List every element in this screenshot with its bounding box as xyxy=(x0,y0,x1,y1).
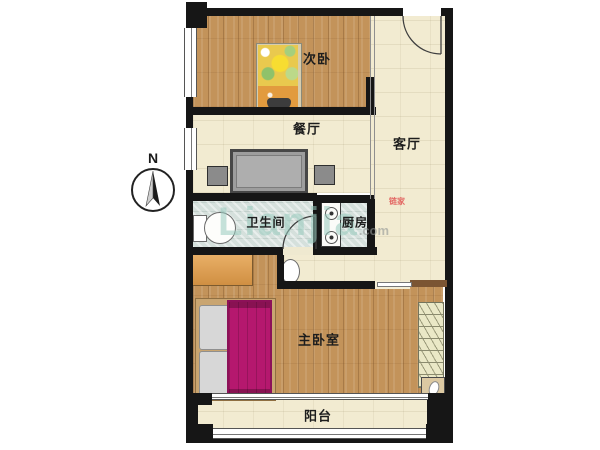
bed-master-pillow-top xyxy=(199,305,230,350)
wardrobe xyxy=(418,302,444,388)
bed-secondary-floral-blanket xyxy=(258,45,298,86)
bed-secondary xyxy=(256,43,302,115)
bed-master-pillow-bottom xyxy=(199,351,230,397)
room-label-bathroom: 卫生间 xyxy=(246,214,285,231)
stove-burner-bottom xyxy=(325,231,338,244)
dining-table-top xyxy=(236,155,302,188)
stove-burner-top xyxy=(325,207,338,220)
wall-balcony-right xyxy=(427,393,453,425)
room-label-kitchen: 厨房 xyxy=(342,214,368,231)
dining-table xyxy=(230,149,308,194)
room-label-living: 客厅 xyxy=(393,134,421,153)
wall-stub-balcony-left xyxy=(186,393,212,405)
wall-master-top xyxy=(277,281,377,289)
compass-north-letter: N xyxy=(148,150,158,166)
room-label-master: 主卧室 xyxy=(298,330,340,349)
wall-right xyxy=(445,8,453,443)
wall-kitchen-top xyxy=(313,195,375,203)
floor-plan-canvas: N Lianjia.com 链家 次卧 餐厅 客厅 卫生间 厨房 主卧室 阳台 xyxy=(0,0,600,450)
slider-master-balcony xyxy=(212,393,428,400)
window-bedroom2-left xyxy=(184,28,197,97)
room-label-dining: 餐厅 xyxy=(293,119,321,138)
wall-corner-bottom-left xyxy=(186,424,213,437)
partition-line-left xyxy=(370,16,371,199)
wall-bathroom-bottom xyxy=(186,247,283,255)
window-balcony-bottom xyxy=(213,428,426,439)
wall-kitchen-bottom xyxy=(313,247,377,255)
bed-master-blanket xyxy=(227,300,272,397)
wall-left-a xyxy=(186,8,193,28)
cabinet xyxy=(189,252,253,286)
wall-left-c xyxy=(186,170,193,393)
partition-line-right xyxy=(374,16,375,199)
wall-bath-kitchen-divider xyxy=(313,195,321,249)
master-door-leaf xyxy=(377,282,412,287)
window-dining-left xyxy=(184,128,197,170)
bathroom-door-opening xyxy=(283,247,313,255)
compass-icon: N xyxy=(126,150,180,216)
toilet-bowl xyxy=(204,212,236,244)
room-label-bedroom2: 次卧 xyxy=(303,49,331,68)
wall-corner-bottom-right xyxy=(426,424,453,437)
dining-chair-left xyxy=(207,166,228,186)
wall-master-top-right xyxy=(410,280,447,287)
bed-master xyxy=(195,298,276,401)
wall-bathroom-top xyxy=(186,193,317,201)
wall-top-left-segment xyxy=(186,8,403,16)
entrance-opening xyxy=(403,8,441,16)
dining-chair-right xyxy=(314,165,335,185)
room-label-balcony: 阳台 xyxy=(304,406,332,425)
wall-bedroom2-bottom xyxy=(189,107,376,115)
stove xyxy=(321,202,341,247)
wall-kitchen-right xyxy=(367,195,375,253)
